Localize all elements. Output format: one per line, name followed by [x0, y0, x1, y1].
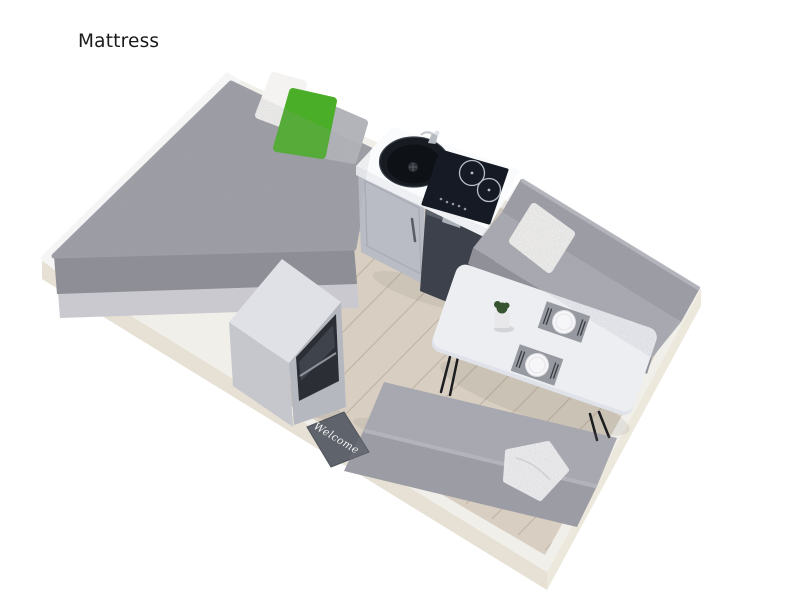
burner-dot-2	[488, 189, 491, 192]
burner-dot-1	[471, 172, 474, 175]
faucet-knob	[435, 131, 440, 136]
faucet-spout	[421, 132, 433, 135]
room-planner-canvas: Welcome	[0, 0, 800, 600]
item-label: Mattress	[78, 31, 159, 52]
room-3d-render: Welcome	[0, 0, 800, 600]
